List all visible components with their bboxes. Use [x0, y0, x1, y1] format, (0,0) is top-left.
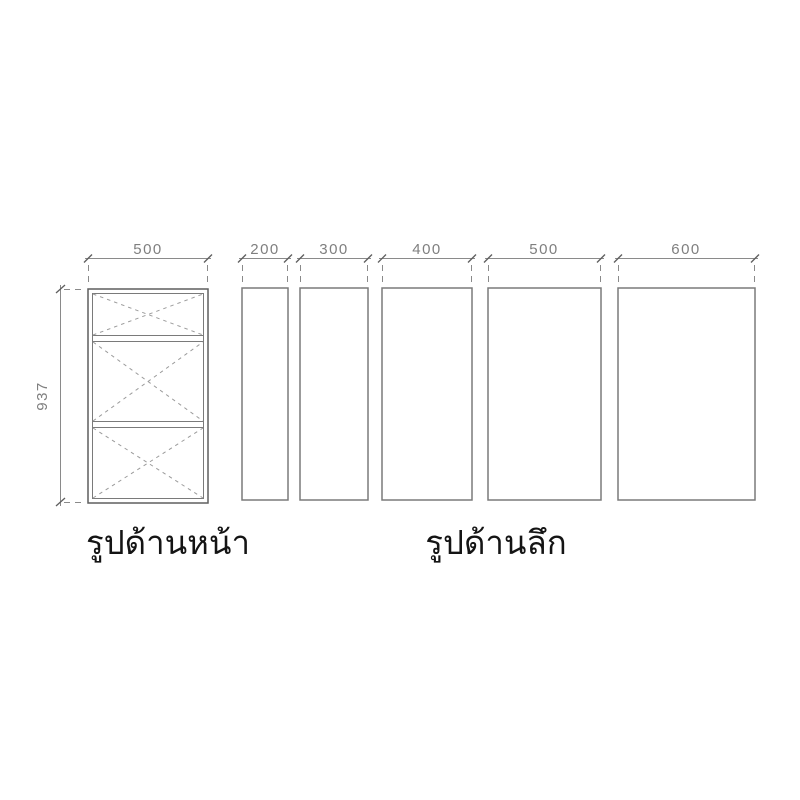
depth-rect-4: [488, 288, 601, 500]
dimension: [614, 255, 759, 286]
depth-dim-label-5: 600: [671, 241, 701, 258]
depth-panel-4: 500: [484, 241, 605, 500]
cabinet-inner-frame: [93, 294, 204, 499]
extension-lines: [89, 265, 208, 286]
shelf-1: [93, 336, 204, 342]
depth-view-caption: รูปด้านลึก: [386, 516, 606, 569]
depth-panel-3: 400: [378, 241, 476, 500]
shelf-2: [93, 422, 204, 428]
dimension: [484, 255, 605, 286]
front-view-caption: รูปด้านหน้า: [58, 516, 278, 569]
depth-dim-label-4: 500: [529, 241, 559, 258]
compartment-cross-top: [93, 294, 203, 335]
depth-dim-label-2: 300: [319, 241, 349, 258]
front-width-dimension: [84, 255, 212, 287]
depth-rect-1: [242, 288, 288, 500]
technical-drawing: 500 937: [0, 0, 800, 800]
depth-dim-label-1: 200: [250, 241, 280, 258]
cabinet-outer-frame: [88, 289, 208, 503]
depth-panel-1: 200: [238, 241, 292, 500]
extension-lines: [64, 290, 86, 503]
extension-lines: [301, 265, 368, 285]
extension-lines: [383, 265, 472, 285]
front-height-dimension: [56, 285, 86, 506]
extension-lines: [619, 265, 755, 285]
drawing-canvas: 500 937: [0, 0, 800, 800]
dimension: [238, 255, 292, 286]
depth-rect-2: [300, 288, 368, 500]
compartment-cross-bottom: [93, 428, 203, 498]
depth-rect-3: [382, 288, 472, 500]
depth-panel-2: 300: [296, 241, 372, 500]
dimension: [378, 255, 476, 286]
compartment-cross-middle: [93, 342, 203, 421]
cabinet-body: [88, 289, 208, 503]
front-height-dim-label: 937: [34, 381, 51, 411]
front-width-dim-label: 500: [133, 241, 163, 258]
front-view: 500 937: [34, 241, 212, 506]
dimension: [296, 255, 372, 286]
depth-views: 200 300: [238, 241, 759, 500]
depth-rect-5: [618, 288, 755, 500]
depth-panel-5: 600: [614, 241, 759, 500]
extension-lines: [243, 265, 288, 285]
extension-lines: [489, 265, 601, 285]
depth-dim-label-3: 400: [412, 241, 442, 258]
